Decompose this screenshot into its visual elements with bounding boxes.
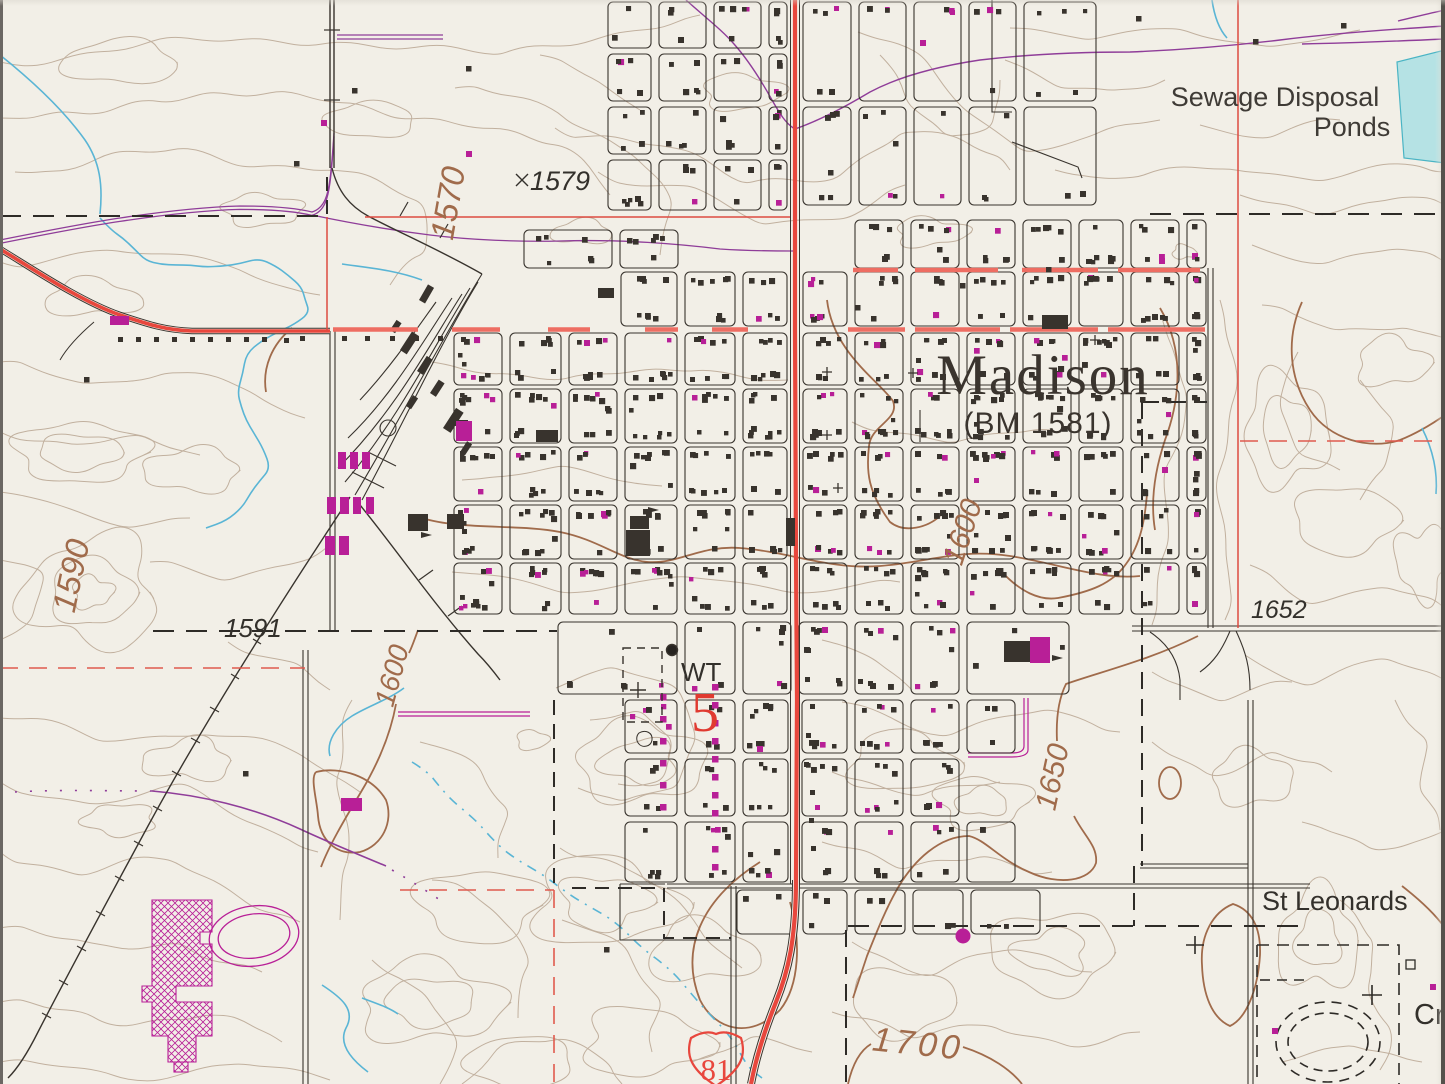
svg-text:1579: 1579: [530, 166, 590, 196]
svg-text:81: 81: [701, 1052, 732, 1084]
svg-text:1652: 1652: [1251, 596, 1307, 624]
svg-text:5: 5: [691, 682, 719, 744]
svg-text:Ponds: Ponds: [1314, 112, 1391, 142]
svg-text:St Leonards: St Leonards: [1262, 886, 1408, 916]
svg-text:Sewage Disposal: Sewage Disposal: [1171, 82, 1380, 112]
svg-text:Madison: Madison: [936, 344, 1150, 407]
svg-text:1591: 1591: [224, 613, 282, 643]
svg-text:(BM 1581): (BM 1581): [963, 407, 1112, 440]
